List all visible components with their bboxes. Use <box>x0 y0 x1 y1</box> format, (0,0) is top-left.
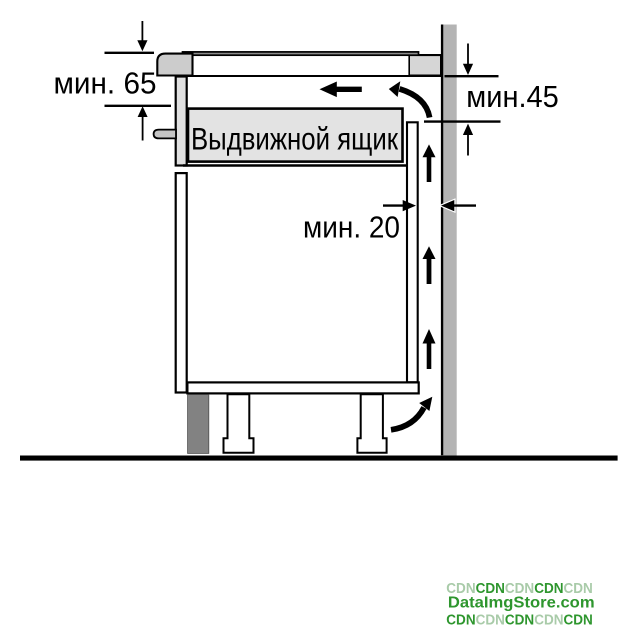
svg-text:мин.45: мин.45 <box>466 79 559 114</box>
svg-text:CDN: CDN <box>564 613 593 629</box>
svg-text:DataImgStore.com: DataImgStore.com <box>448 595 595 612</box>
svg-text:мин. 20: мин. 20 <box>303 210 400 245</box>
svg-text:CDN: CDN <box>446 613 475 629</box>
svg-text:CDN: CDN <box>476 613 505 629</box>
svg-text:Выдвижной ящик: Выдвижной ящик <box>191 121 398 156</box>
svg-text:мин. 65: мин. 65 <box>54 66 157 101</box>
svg-text:CDN: CDN <box>505 613 534 629</box>
svg-text:CDN: CDN <box>534 613 563 629</box>
